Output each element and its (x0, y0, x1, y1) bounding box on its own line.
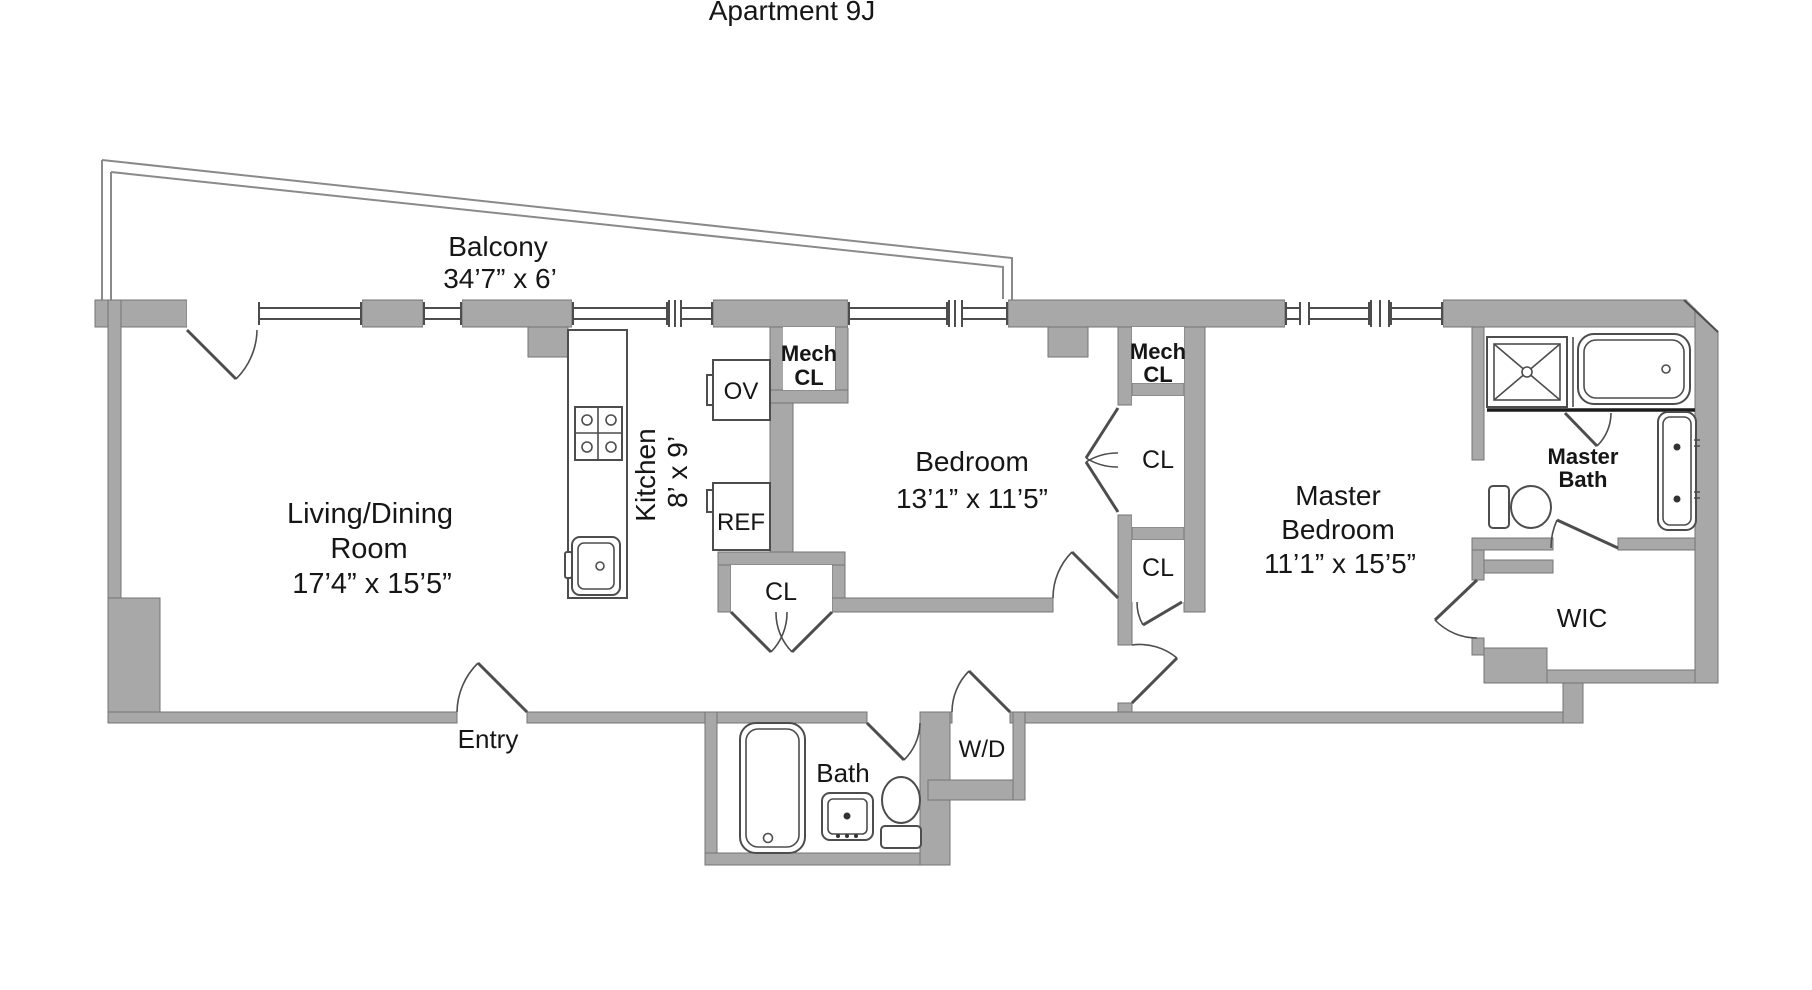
master-bath-label-2: Bath (1559, 467, 1608, 492)
living-room-label-2: Room (330, 533, 407, 565)
mech-closet-label-2: CL (794, 365, 823, 390)
bedroom-label: Bedroom (915, 446, 1029, 477)
laundry-door (952, 671, 1010, 712)
wall (1484, 560, 1553, 573)
mech-closet-master-label: Mech (1130, 339, 1186, 364)
wall (1008, 300, 1285, 327)
balcony-label: Balcony (448, 231, 548, 262)
wall (108, 598, 160, 712)
wall (705, 712, 717, 865)
wall (1484, 648, 1547, 683)
wall (1118, 515, 1132, 645)
kitchen-sink-symbol (565, 537, 620, 595)
wall (1010, 712, 1563, 723)
hall-closet-label: CL (765, 578, 797, 606)
master-bathtub-symbol (1578, 334, 1690, 404)
floor-plan-page: Apartment 9J Balcony 34’7” x 6’ Living/D… (0, 0, 1812, 990)
balcony-outline (102, 160, 1012, 300)
window (963, 299, 1008, 328)
wall (528, 327, 568, 357)
wall (1547, 670, 1718, 683)
master-bath-label: Master (1548, 444, 1619, 469)
door-opening (187, 299, 258, 328)
master-bedroom-dimensions: 11’1” x 15’5” (1264, 548, 1416, 579)
window (572, 299, 668, 328)
mech-closet-label: Mech (781, 341, 837, 366)
wall (770, 390, 848, 403)
bedroom-door (1053, 552, 1118, 598)
balcony-dimensions: 34’7” x 6’ (443, 263, 557, 294)
window-pier (948, 299, 963, 328)
bedroom-dimensions: 13’1” x 11’5” (896, 483, 1048, 514)
oven-label: OV (724, 378, 759, 405)
shower-door (1565, 413, 1611, 446)
bedroom-closet-label: CL (1142, 446, 1174, 474)
window (1285, 299, 1301, 328)
master-bedroom-door (1132, 644, 1177, 703)
balcony-door (187, 330, 257, 379)
wall (1618, 538, 1695, 550)
entry-door (457, 663, 527, 712)
wall (718, 565, 731, 612)
wall (1132, 527, 1184, 540)
wall (1563, 683, 1583, 723)
stove-symbol (575, 407, 622, 460)
wall (1048, 327, 1088, 357)
master-bedroom-label: Master (1295, 480, 1381, 511)
living-room-label: Living/Dining (287, 498, 453, 530)
window (423, 299, 462, 328)
mech-closet-master-label-2: CL (1143, 362, 1172, 387)
wic-label: WIC (1557, 603, 1608, 633)
master-hall-closet-door (1137, 602, 1182, 625)
wall (1472, 538, 1553, 550)
window (682, 299, 713, 328)
vanity-symbol (1658, 412, 1700, 530)
kitchen-dimensions: 8’ x 9’ (662, 436, 693, 508)
page-title: Apartment 9J (709, 0, 876, 26)
wall (1013, 712, 1025, 800)
toilet-symbol (881, 777, 921, 848)
wall (1472, 327, 1484, 460)
wic-door (1435, 580, 1477, 638)
entry-label: Entry (458, 724, 519, 754)
bath-label: Bath (816, 758, 870, 788)
window-pier (1370, 299, 1390, 328)
bath-sink-symbol (822, 793, 873, 840)
wall (1443, 300, 1718, 327)
bath-door (867, 723, 920, 760)
master-toilet-symbol (1489, 486, 1551, 528)
master-bath-fixtures (1487, 334, 1700, 530)
wall (1472, 638, 1484, 655)
hall-closet-doors (731, 612, 832, 652)
wall (362, 300, 423, 327)
master-bedroom-label-2: Bedroom (1281, 514, 1395, 545)
bath-fixtures (740, 723, 921, 853)
wall (928, 780, 1025, 800)
wall (1184, 327, 1205, 612)
floor-plan-drawing: Apartment 9J Balcony 34’7” x 6’ Living/D… (0, 0, 1812, 990)
wall (832, 598, 1053, 612)
wall (527, 712, 867, 723)
window (1308, 299, 1370, 328)
wall (705, 853, 950, 865)
refrigerator-label: REF (717, 509, 765, 536)
bathtub-symbol (740, 723, 805, 853)
wall (718, 552, 845, 565)
wall (108, 300, 121, 598)
wall (713, 300, 848, 327)
window-pier (668, 299, 682, 328)
window (258, 299, 362, 328)
shower-symbol (1487, 337, 1567, 407)
window (848, 299, 948, 328)
wall (1118, 703, 1132, 712)
kitchen-label: Kitchen (630, 428, 661, 521)
laundry-label: W/D (959, 736, 1006, 763)
wall (462, 300, 572, 327)
bedroom-closet-bifold-doors (1086, 408, 1118, 512)
wall (108, 712, 457, 723)
window (1390, 299, 1443, 328)
living-room-dimensions: 17’4” x 15’5” (292, 568, 452, 600)
master-bath-door (1551, 520, 1618, 548)
master-hall-closet-label: CL (1142, 554, 1174, 582)
